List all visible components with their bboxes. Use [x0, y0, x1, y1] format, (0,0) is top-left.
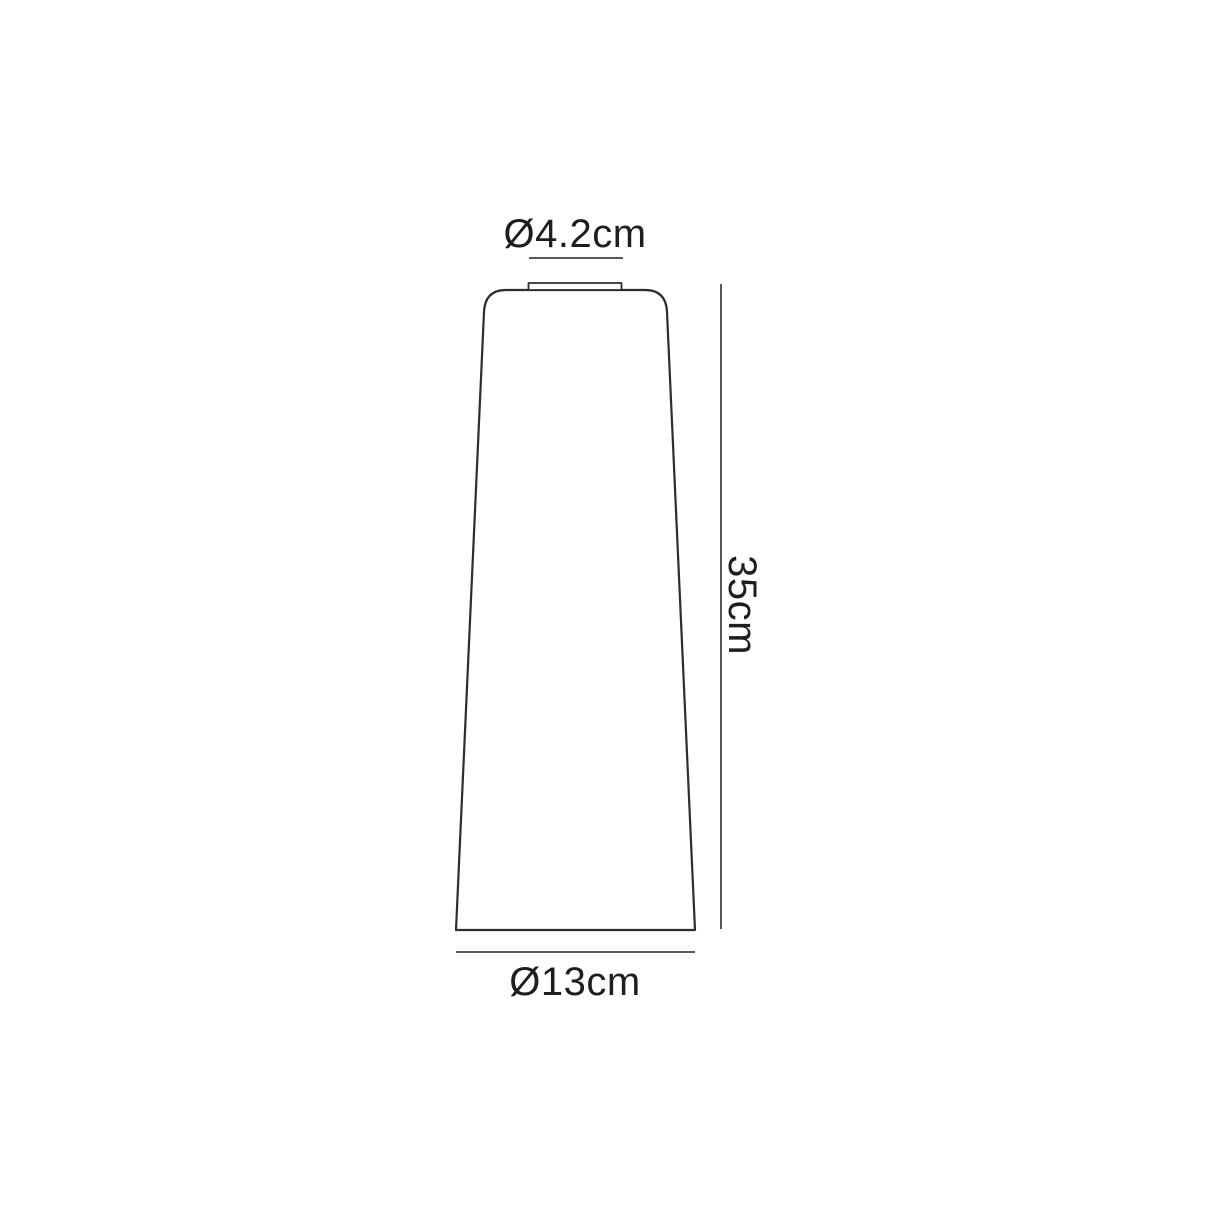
dimension-diagram-page: Ø4.2cm 35cm Ø13cm — [0, 0, 1214, 1214]
shade-body-outline — [456, 290, 695, 930]
diagram-svg: Ø4.2cm 35cm Ø13cm — [0, 0, 1214, 1214]
height-label: 35cm — [720, 555, 764, 655]
bottom-diameter-label: Ø13cm — [509, 960, 640, 1004]
top-diameter-label: Ø4.2cm — [503, 212, 646, 256]
shade-neck-collar — [529, 283, 622, 290]
